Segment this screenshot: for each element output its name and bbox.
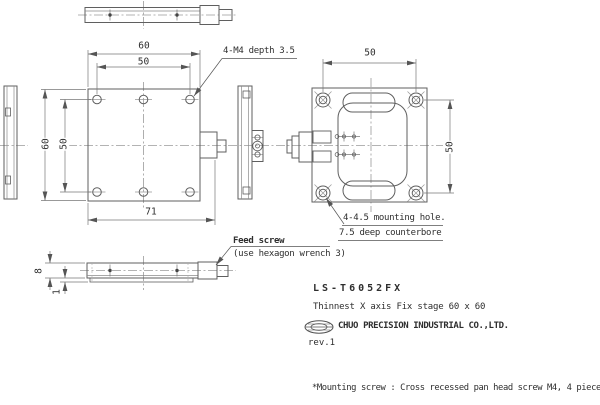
counterbore-holes bbox=[315, 92, 425, 202]
dim-bottom-view-height: 50 bbox=[445, 140, 455, 153]
model-number: LS-T6052FX bbox=[313, 284, 403, 294]
left-side-view-drawing bbox=[4, 86, 17, 199]
company-logo-icon bbox=[305, 321, 333, 333]
mounting-hole-annotation-line1: 4-4.5 mounting hole. bbox=[343, 214, 445, 223]
dim-bottom-view-width: 50 bbox=[364, 48, 375, 58]
mounting-screw-footnote: *Mounting screw : Cross recessed pan hea… bbox=[312, 384, 600, 393]
dim-front-bottom-total: 71 bbox=[145, 207, 156, 217]
tap-hole-annotation: 4-M4 depth 3.5 bbox=[223, 47, 295, 56]
right-side-view-drawing bbox=[238, 86, 263, 199]
dim-front-top-outer: 60 bbox=[138, 41, 149, 51]
drawing-linework bbox=[0, 0, 600, 405]
feed-screw-note-annotation: (use hexagon wrench 3) bbox=[233, 250, 346, 259]
dim-front-left-inner: 50 bbox=[59, 137, 69, 150]
revision-label: rev.1 bbox=[308, 339, 335, 348]
company-name: CHUO PRECISION INDUSTRIAL CO.,LTD. bbox=[338, 322, 509, 331]
side-section-view-drawing bbox=[80, 256, 236, 290]
front-view-drawing bbox=[88, 82, 226, 208]
dim-side-thickness: 8 bbox=[34, 268, 44, 274]
top-view-drawing bbox=[78, 1, 238, 29]
feed-screw-assembly bbox=[287, 131, 331, 162]
dim-front-left-outer: 60 bbox=[41, 137, 51, 150]
bottom-view-drawing bbox=[287, 78, 427, 212]
mounting-hole-annotation-line2: 7.5 deep counterbore bbox=[339, 229, 441, 238]
feed-screw-annotation: Feed screw bbox=[233, 237, 284, 246]
technical-drawing-sheet: 60 50 60 50 71 50 50 8 1 4-M4 depth 3.5 … bbox=[0, 0, 600, 405]
product-description: Thinnest X axis Fix stage 60 x 60 bbox=[313, 303, 485, 312]
dim-side-step: 1 bbox=[52, 289, 62, 295]
dim-front-top-inner: 50 bbox=[138, 57, 149, 67]
